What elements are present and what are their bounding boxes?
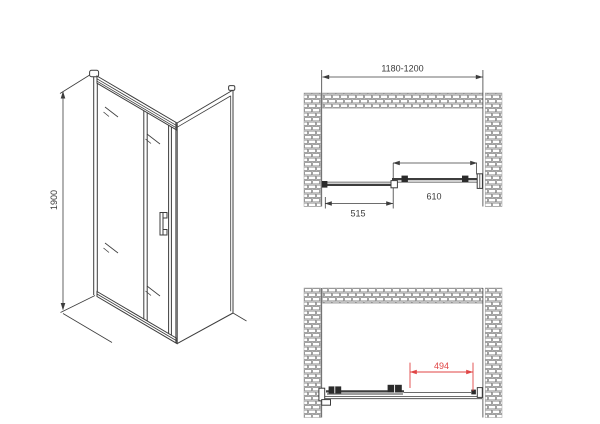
side-panel [177,86,247,344]
shower-door-drawing: 1900 [0,0,600,424]
walls-open [304,288,502,418]
technical-drawing-canvas: 1900 [0,0,600,424]
plan-view-closed: 1180-1200 610 515 [304,64,502,219]
door-assembly-closed [322,174,483,189]
bottom-rail [97,292,177,344]
top-rail [97,76,177,130]
height-dimension: 1900 [49,75,95,313]
door-assembly-open [319,385,482,405]
floor-line [63,314,112,343]
opening-dimension: 494 [410,361,473,391]
fixed-panel-dimension: 515 [325,197,393,219]
glass-reflection-marks [104,107,161,296]
panel-divider-stile [144,111,147,321]
sliding-panel-width-label: 610 [426,192,441,202]
sliding-panel-dimension: 610 [393,161,477,209]
wall-profile-left [90,70,99,296]
height-dimension-label: 1900 [49,190,59,210]
niche-width-label: 1180-1200 [381,64,423,74]
plan-view-open: 494 [304,288,502,418]
niche-width-dimension: 1180-1200 [322,64,483,80]
door-right-stile [169,122,178,343]
opening-width-label: 494 [434,361,449,371]
front-view: 1900 [49,70,247,343]
fixed-panel-width-label: 515 [350,209,365,219]
door-handle [160,213,167,236]
